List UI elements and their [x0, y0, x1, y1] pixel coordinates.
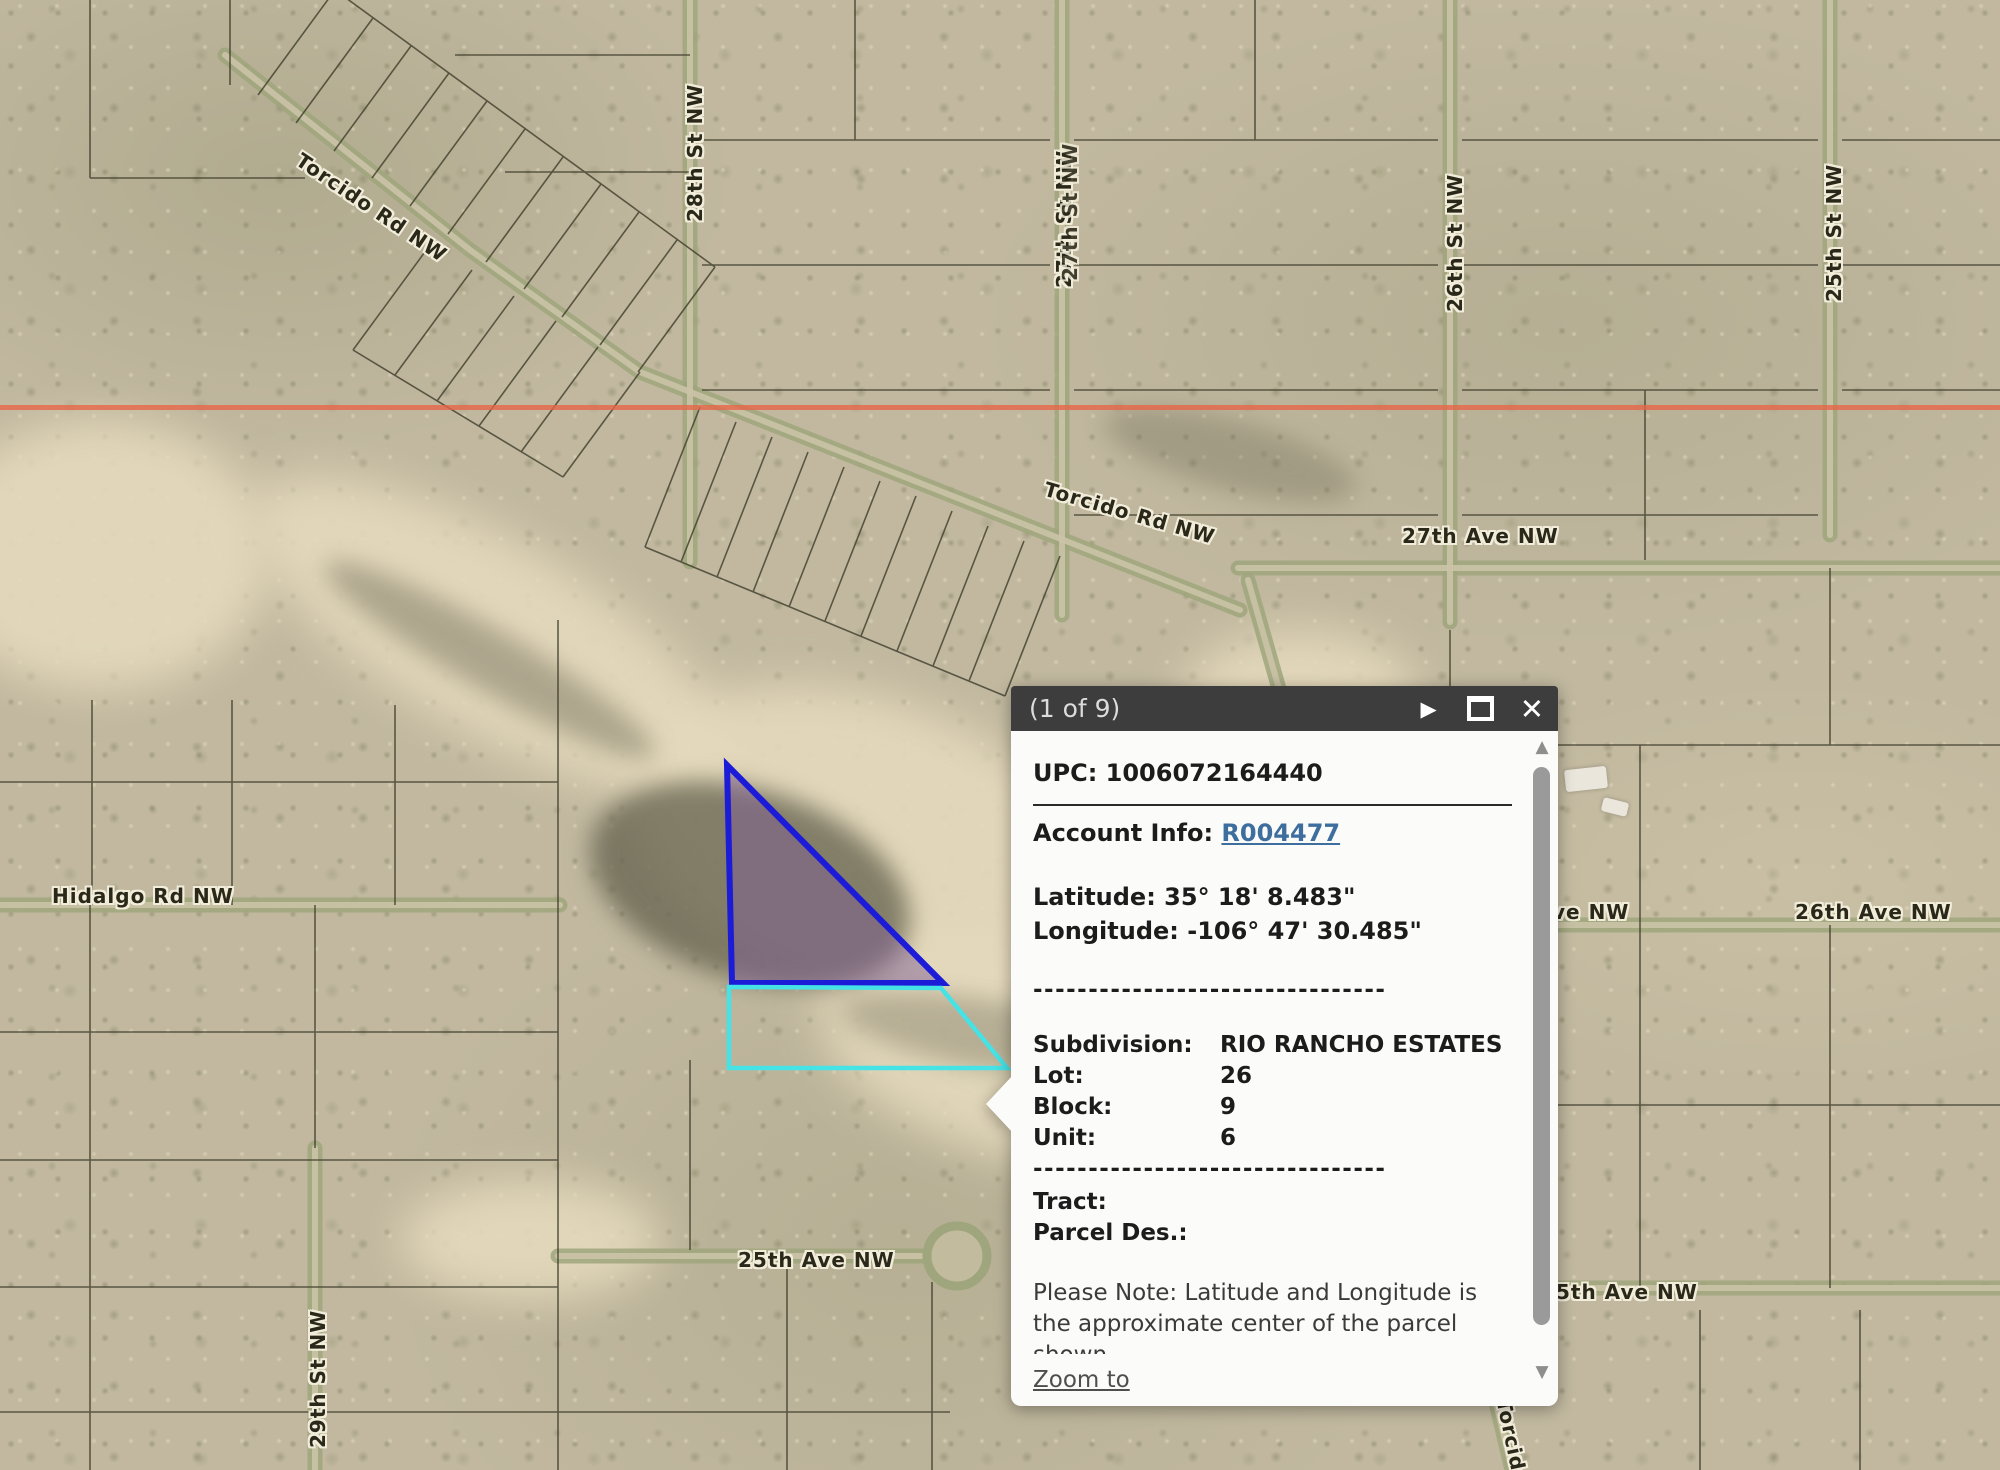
coordinates-block: Latitude: 35° 18' 8.483" Longitude: -106…	[1033, 880, 1512, 948]
upc-label: UPC:	[1033, 759, 1097, 787]
divider	[1033, 804, 1512, 806]
road-label-28th-st: 28th St NW	[683, 84, 707, 222]
longitude-label: Longitude:	[1033, 917, 1179, 945]
popup-header[interactable]: (1 of 9) ▶ ✕	[1011, 686, 1558, 731]
dashed-divider: --------------------------------	[1033, 1156, 1512, 1182]
next-feature-icon[interactable]: ▶	[1421, 697, 1437, 721]
road-label-26th-ave-partial: ve NW	[1552, 900, 1629, 924]
unit-label: Unit:	[1033, 1123, 1220, 1154]
popup-footer: Zoom to	[1033, 1367, 1130, 1393]
popup-scrollbar-thumb[interactable]	[1533, 767, 1550, 1325]
block-value: 9	[1220, 1092, 1236, 1123]
account-row: Account Info: R004477	[1033, 819, 1512, 847]
account-info-link[interactable]: R004477	[1221, 819, 1340, 847]
account-label: Account Info:	[1033, 819, 1213, 847]
longitude-value: -106° 47' 30.485"	[1187, 917, 1422, 945]
popup-body: UPC: 1006072164440 Account Info: R004477…	[1011, 731, 1558, 1406]
highlight-layer	[0, 0, 2000, 1470]
latitude-label: Latitude:	[1033, 883, 1156, 911]
road-label-hidalgo: Hidalgo Rd NW	[52, 884, 234, 908]
tract-block: Tract: Parcel Des.:	[1033, 1187, 1512, 1249]
latitude-value: 35° 18' 8.483"	[1164, 883, 1355, 911]
road-label-25th-ave: 25th Ave NW	[738, 1248, 895, 1272]
tract-label: Tract:	[1033, 1187, 1512, 1218]
lot-value: 26	[1220, 1061, 1252, 1092]
lot-label: Lot:	[1033, 1061, 1220, 1092]
road-label-25th-st: 25th St NW	[1822, 164, 1846, 302]
popup-content: UPC: 1006072164440 Account Info: R004477…	[1011, 731, 1558, 1354]
scroll-up-icon[interactable]: ▲	[1531, 737, 1553, 757]
popup-scrollbar[interactable]: ▲ ▼	[1531, 737, 1553, 1360]
upc-value: 1006072164440	[1106, 759, 1323, 787]
road-label-26th-st: 26th St NW	[1443, 174, 1467, 312]
note-text: Please Note: Latitude and Longitude is t…	[1033, 1278, 1505, 1354]
adjacent-parcel-highlight[interactable]	[729, 987, 1007, 1068]
subdivision-value: RIO RANCHO ESTATES	[1220, 1030, 1502, 1061]
zoom-to-link[interactable]: Zoom to	[1033, 1367, 1130, 1393]
close-icon[interactable]: ✕	[1520, 692, 1544, 726]
road-label-27th-ave: 27th Ave NW	[1402, 524, 1559, 548]
popup-callout-tail	[986, 1075, 1013, 1133]
upc-row: UPC: 1006072164440	[1033, 759, 1512, 787]
unit-value: 6	[1220, 1123, 1236, 1154]
parcel-info-popup: (1 of 9) ▶ ✕ UPC: 1006072164440 Account …	[1011, 686, 1558, 1406]
road-label-27th-st: 27th St NW	[1058, 143, 1082, 281]
subdivision-label: Subdivision:	[1033, 1030, 1220, 1061]
subdivision-table: Subdivision: RIO RANCHO ESTATES Lot: 26 …	[1033, 1030, 1512, 1154]
block-label: Block:	[1033, 1092, 1220, 1123]
scroll-down-icon[interactable]: ▼	[1531, 1362, 1553, 1382]
road-label-5th-ave-right: 5th Ave NW	[1556, 1280, 1698, 1304]
maximize-icon[interactable]	[1467, 696, 1494, 721]
parcel-des-label: Parcel Des.:	[1033, 1218, 1512, 1249]
road-label-29th-st: 29th St NW	[306, 1310, 330, 1448]
dashed-divider: --------------------------------	[1033, 977, 1512, 1003]
selected-parcel-highlight[interactable]	[727, 765, 943, 983]
road-label-26th-ave: 26th Ave NW	[1795, 900, 1952, 924]
map-viewport[interactable]: Torcido Rd NW 28th St NW 27th St NW 27th…	[0, 0, 2000, 1470]
popup-pagination: (1 of 9)	[1029, 694, 1421, 723]
